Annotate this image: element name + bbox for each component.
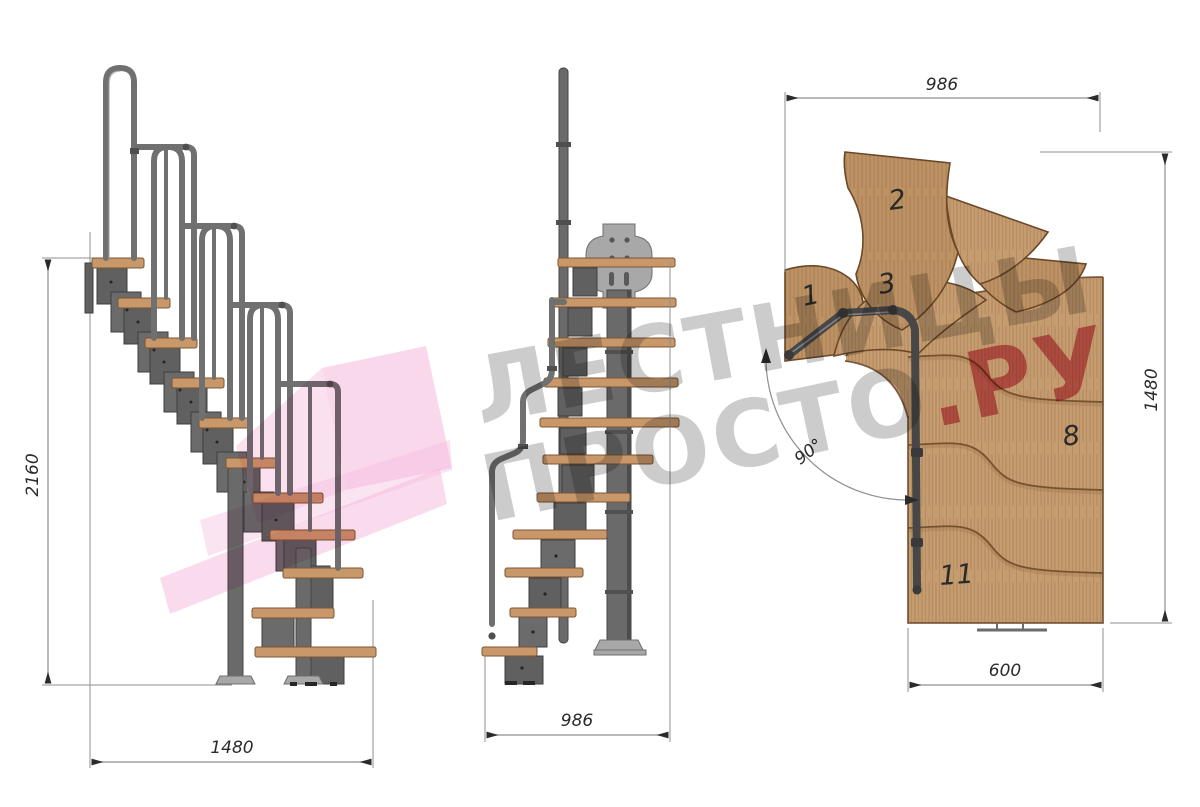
dim-side-height-value: 2160 <box>23 453 43 496</box>
dim-side-run-value: 1480 <box>210 738 253 758</box>
plan-step-label-11: 11 <box>938 559 974 592</box>
staircase-technical-drawing: 2160 1480 <box>0 0 1200 807</box>
dim-plan-flight-width-value: 600 <box>989 661 1021 681</box>
dim-plan-depth-value: 1480 <box>1142 368 1162 411</box>
plan-floor-bracket <box>977 623 1047 630</box>
dim-plan-width-value: 986 <box>926 75 959 95</box>
dim-front-width-value: 986 <box>561 711 594 731</box>
dimension-plan-flight-width: 600 <box>908 628 1103 692</box>
